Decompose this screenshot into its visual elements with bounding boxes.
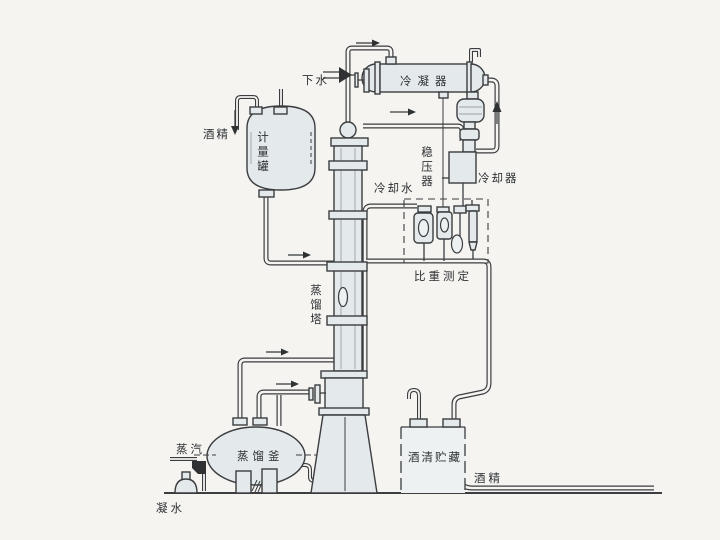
column-skirt	[311, 415, 377, 493]
water-inlet-flange	[364, 69, 369, 92]
label-condensate-water: 凝水	[156, 501, 185, 515]
condenser-side-nozzle	[483, 75, 488, 85]
pipe-column-head-to-cooler	[363, 126, 462, 141]
pipe-tank-feed-to-column	[266, 197, 334, 263]
column-flange	[327, 262, 367, 271]
storage-tank-right-nozzle	[443, 419, 460, 427]
label-drain-water: 下水	[302, 73, 329, 87]
condenser-bottom-nozzle	[439, 92, 448, 98]
condenser-left-flange	[375, 62, 380, 94]
pipe-manifold-to-storage-tank	[366, 261, 489, 419]
kettle-support	[236, 471, 251, 493]
label-pressure-stabilizer: 稳压器	[420, 145, 434, 189]
column-base-drum	[325, 378, 363, 409]
kettle-nozzle-flange	[253, 418, 267, 425]
arrow-right-icon	[408, 109, 416, 116]
cooler-outlet-fitting	[454, 206, 466, 213]
column-flange	[327, 316, 367, 325]
pipe-condenser-vent-gooseneck	[471, 50, 479, 62]
water-inlet-valve-stem	[355, 73, 358, 87]
reducer-vessel-small	[460, 129, 479, 140]
gauge-b-window	[441, 218, 449, 232]
sight-glass	[339, 288, 348, 307]
density-measurement-panel	[404, 199, 488, 263]
column-top-ball	[340, 122, 356, 138]
reducer-tube	[463, 140, 475, 152]
hydrometer-taper	[469, 242, 477, 250]
label-cooler: 冷却器	[478, 171, 519, 185]
process-flow-diagram: 下水 冷凝器 酒精 计量罐 稳压器 冷却器 冷却水 比重测定 蒸馏塔 蒸馏釜 蒸…	[0, 0, 720, 540]
gauge-a-window	[419, 220, 429, 237]
label-condenser: 冷凝器	[400, 74, 453, 88]
arrow-right-icon	[372, 40, 380, 47]
arrow-right-icon	[303, 252, 311, 259]
arrow-right-icon	[291, 381, 299, 388]
label-density-measurement: 比重测定	[414, 269, 472, 283]
column-flange	[329, 211, 367, 219]
measuring-tank-drain-nozzle	[259, 190, 274, 197]
reducer-neck	[467, 92, 478, 99]
arrow-up-icon	[493, 101, 502, 112]
label-distillation-column: 蒸馏塔	[309, 284, 323, 328]
condensate-trap	[175, 479, 197, 493]
condenser-top-nozzle	[386, 57, 396, 64]
gauge-b-flange	[437, 207, 449, 212]
arrow-down-icon	[231, 126, 239, 135]
measuring-tank-left-nozzle	[250, 107, 262, 114]
column-skirt-plate	[319, 408, 369, 415]
reducer-vessel	[457, 99, 484, 122]
label-measuring-tank: 计量罐	[256, 131, 270, 175]
pipe-cooling-water-loop	[365, 206, 417, 372]
measuring-tank-right-nozzle	[274, 107, 287, 114]
condensate-train	[457, 92, 484, 152]
cooler-body	[449, 152, 476, 183]
label-alcohol-in: 酒精	[203, 127, 230, 141]
label-cooling-water: 冷却水	[374, 181, 415, 195]
storage-tank-left-nozzle	[410, 419, 427, 427]
label-alcohol-storage: 酒清贮藏	[408, 450, 462, 464]
kettle-support	[262, 469, 277, 493]
label-steam: 蒸汽	[176, 442, 205, 456]
label-distillation-kettle: 蒸馏釜	[237, 449, 284, 463]
pipe-storage-tank-vent-hook	[409, 390, 419, 419]
column-top-plate	[331, 138, 368, 146]
kettle-nozzle-flange	[233, 418, 247, 425]
float-bulb	[452, 235, 463, 253]
column-body	[334, 146, 362, 371]
arrow-right-icon	[281, 349, 289, 356]
column-inlet-flange	[315, 385, 320, 403]
hydrometer-tube	[469, 211, 477, 242]
steam-valve	[192, 461, 206, 474]
reducer-neck	[464, 122, 475, 129]
label-alcohol-out: 酒精	[474, 471, 503, 485]
hydrometer-cap	[466, 205, 479, 211]
column-inlet-valve	[309, 388, 313, 400]
column-flange	[329, 161, 367, 170]
diagram-canvas: 下水 冷凝器 酒精 计量罐 稳压器 冷却器 冷却水 比重测定 蒸馏塔 蒸馏釜 蒸…	[0, 0, 720, 540]
column-base-plate	[321, 371, 367, 378]
gauge-a-flange	[418, 206, 431, 212]
